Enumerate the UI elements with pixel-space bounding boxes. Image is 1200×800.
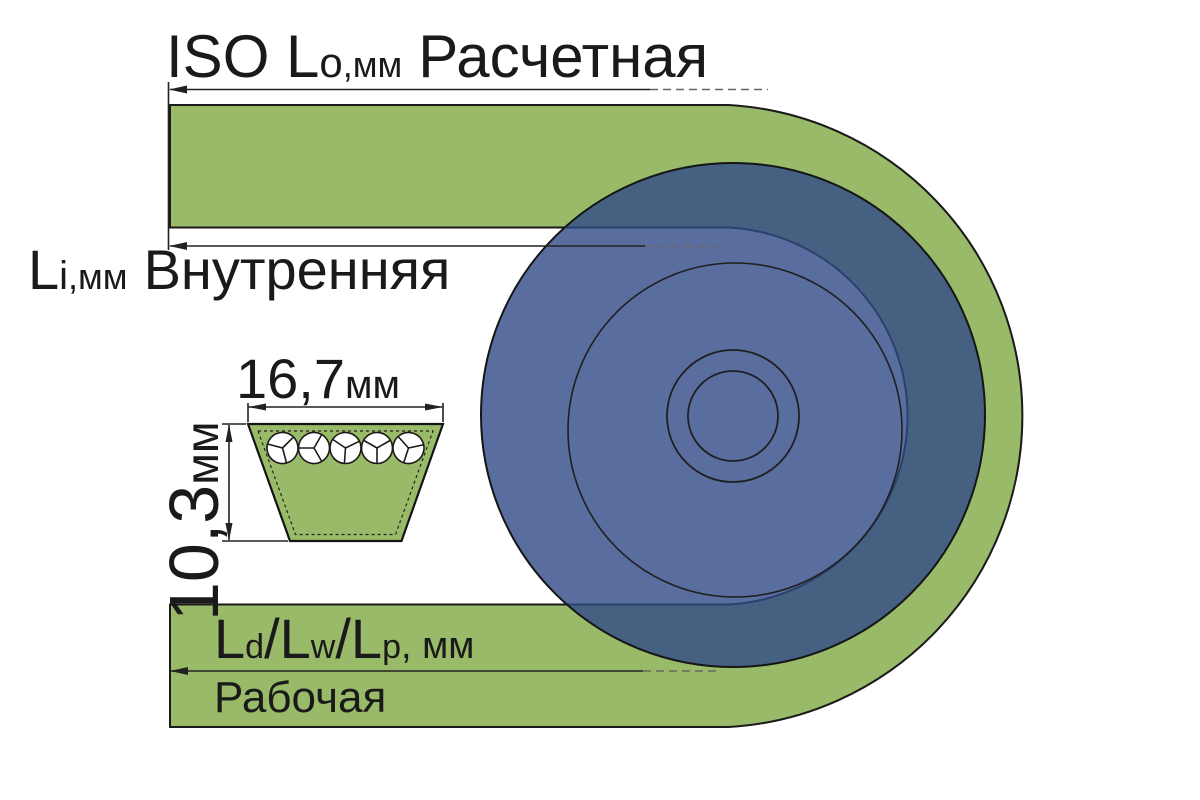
belt-length-diagram: ISO Lo,ммРасчетная Li,ммВнутренняя Ld/Lw… xyxy=(0,0,1200,800)
inner-length-label: Li,ммВнутренняя xyxy=(28,238,450,301)
belt-cross-section xyxy=(222,403,443,541)
working-length-name: Рабочая xyxy=(214,673,386,722)
pulley-disc xyxy=(481,163,985,667)
section-width-label: 16,7мм xyxy=(236,347,400,410)
cord-strand-4 xyxy=(362,433,393,464)
outer-length-label: ISO Lo,ммРасчетная xyxy=(166,23,708,90)
pulley xyxy=(481,163,985,667)
section-height-label: 10,3мм xyxy=(155,422,233,622)
width-arrow-right-icon xyxy=(425,404,443,411)
diagram-canvas: ISO Lo,ммРасчетная Li,ммВнутренняя Ld/Lw… xyxy=(0,0,1200,800)
